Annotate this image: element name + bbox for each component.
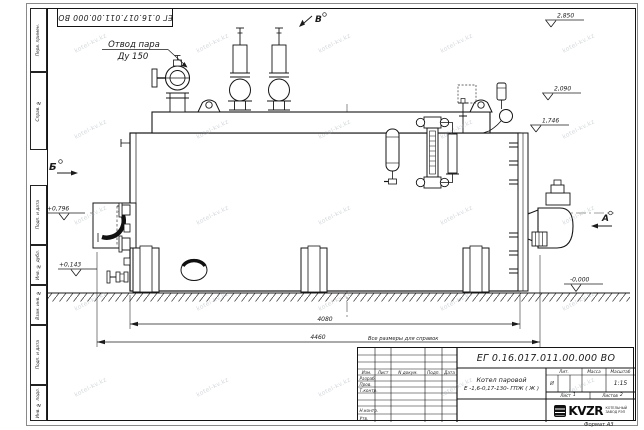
side-column-box: Инв. № дубл. — [30, 245, 47, 285]
top-doc-number-text: ЕГ 0.16.017.011.00.000 ВО — [58, 13, 173, 22]
blueprint-sheet: { "watermark": { "text": "kotel-kv.kz" }… — [0, 0, 644, 430]
scale-value: 1:15 — [606, 375, 635, 392]
side-column-label: Подп. и дата — [36, 340, 41, 369]
company-subtitle: КОТЕЛЬНЫЙ ЗАВОД РЭП — [605, 407, 627, 415]
side-column-box: Перв. примен. — [30, 8, 47, 72]
product-name-line1: Котел паровой — [476, 376, 526, 384]
product-name: Котел паровой Е -1,6-0,17-130- ГПЖ ( Ж ) — [457, 368, 546, 399]
sheet-value: 1 — [573, 393, 576, 398]
side-column-box: Подп. и дата — [30, 325, 47, 385]
side-column-label: Справ. № — [36, 100, 41, 121]
side-column-box: Подп. и дата — [30, 185, 47, 245]
row-tkontr: Т.контр. — [358, 387, 391, 393]
company-cell: KVZR КОТЕЛЬНЫЙ ЗАВОД РЭП — [546, 399, 635, 422]
product-name-line2: Е -1,6-0,17-130- ГПЖ ( Ж ) — [464, 386, 539, 392]
side-column-box: Справ. № — [30, 72, 47, 150]
side-column-label: Подп. и дата — [36, 200, 41, 229]
company-subtitle-line2: ЗАВОД РЭП — [605, 411, 627, 415]
reference-note: Все размеры для справок — [368, 336, 438, 342]
col-header-ndoc: N докум. — [391, 369, 425, 375]
col-header-podp: Подп. — [425, 369, 442, 375]
scale-label: Масштаб — [606, 368, 635, 375]
side-column-label: Перв. примен. — [36, 24, 41, 56]
company-logo-text: KVZR — [568, 404, 603, 418]
top-doc-number-stamp: ЕГ 0.16.017.011.00.000 ВО — [57, 8, 173, 27]
mass-label: Масса — [582, 368, 606, 375]
sheet-label: Лист — [560, 393, 571, 398]
side-column-label: Инв. № подл. — [36, 388, 41, 418]
lit-value: И — [546, 375, 558, 392]
company-logo-icon — [554, 405, 566, 417]
sheets-value: 2 — [620, 393, 623, 398]
side-column-box: Инв. № подл. — [30, 385, 47, 421]
lit-label: Лит. — [546, 368, 582, 375]
row-nkontr: Н.контр. — [358, 406, 391, 414]
row-utv: Утв. — [358, 414, 391, 422]
col-header-data: Дата — [442, 369, 457, 375]
side-column-label: Инв. № дубл. — [36, 250, 41, 280]
sheets-cell: Листов 2 — [590, 392, 635, 399]
side-column-label: Взам. инв. № — [36, 290, 41, 320]
title-block: ЕГ 0.16.017.011.00.000 ВО Изм. Лист N до… — [357, 347, 634, 421]
side-column-box: Взам. инв. № — [30, 285, 47, 325]
format-note: Формат А3 — [584, 422, 614, 428]
sheets-label: Листов — [602, 393, 618, 398]
title-doc-number: ЕГ 0.16.017.011.00.000 ВО — [457, 348, 635, 368]
sheet-cell: Лист 1 — [546, 392, 590, 399]
